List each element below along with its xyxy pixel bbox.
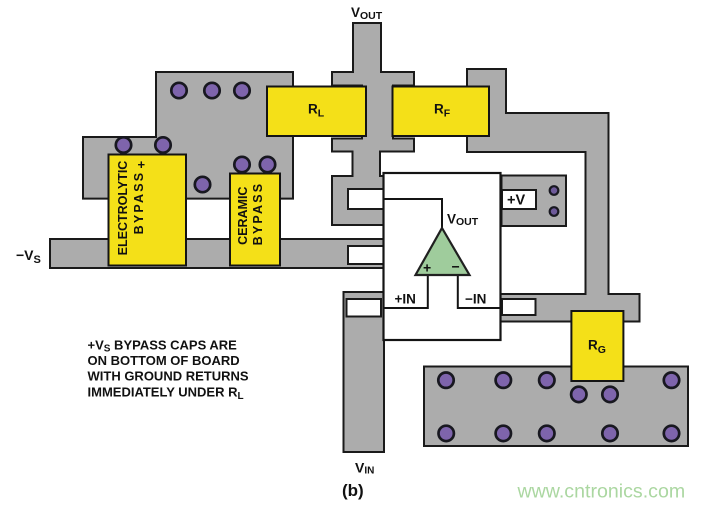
svg-text:IMMEDIATELY UNDER RL: IMMEDIATELY UNDER RL <box>88 384 244 402</box>
svg-text:CERAMIC: CERAMIC <box>236 187 250 245</box>
svg-text:BYPASS: BYPASS <box>251 182 265 246</box>
svg-text:(b): (b) <box>342 481 364 500</box>
svg-text:+: + <box>138 157 146 172</box>
svg-text:ELECTROLYTIC: ELECTROLYTIC <box>116 161 130 256</box>
svg-text:WITH GROUND RETURNS: WITH GROUND RETURNS <box>88 369 249 384</box>
svg-text:+VS BYPASS CAPS ARE: +VS BYPASS CAPS ARE <box>88 337 238 354</box>
svg-text:+V: +V <box>507 193 525 209</box>
svg-text:www.cntronics.com: www.cntronics.com <box>517 481 686 503</box>
svg-text:−: − <box>452 259 460 275</box>
svg-text:BYPASS: BYPASS <box>132 171 146 235</box>
svg-text:−IN: −IN <box>465 291 486 306</box>
svg-text:ON BOTTOM OF BOARD: ON BOTTOM OF BOARD <box>88 353 240 368</box>
svg-text:+IN: +IN <box>395 291 416 306</box>
svg-text:+: + <box>423 260 431 276</box>
